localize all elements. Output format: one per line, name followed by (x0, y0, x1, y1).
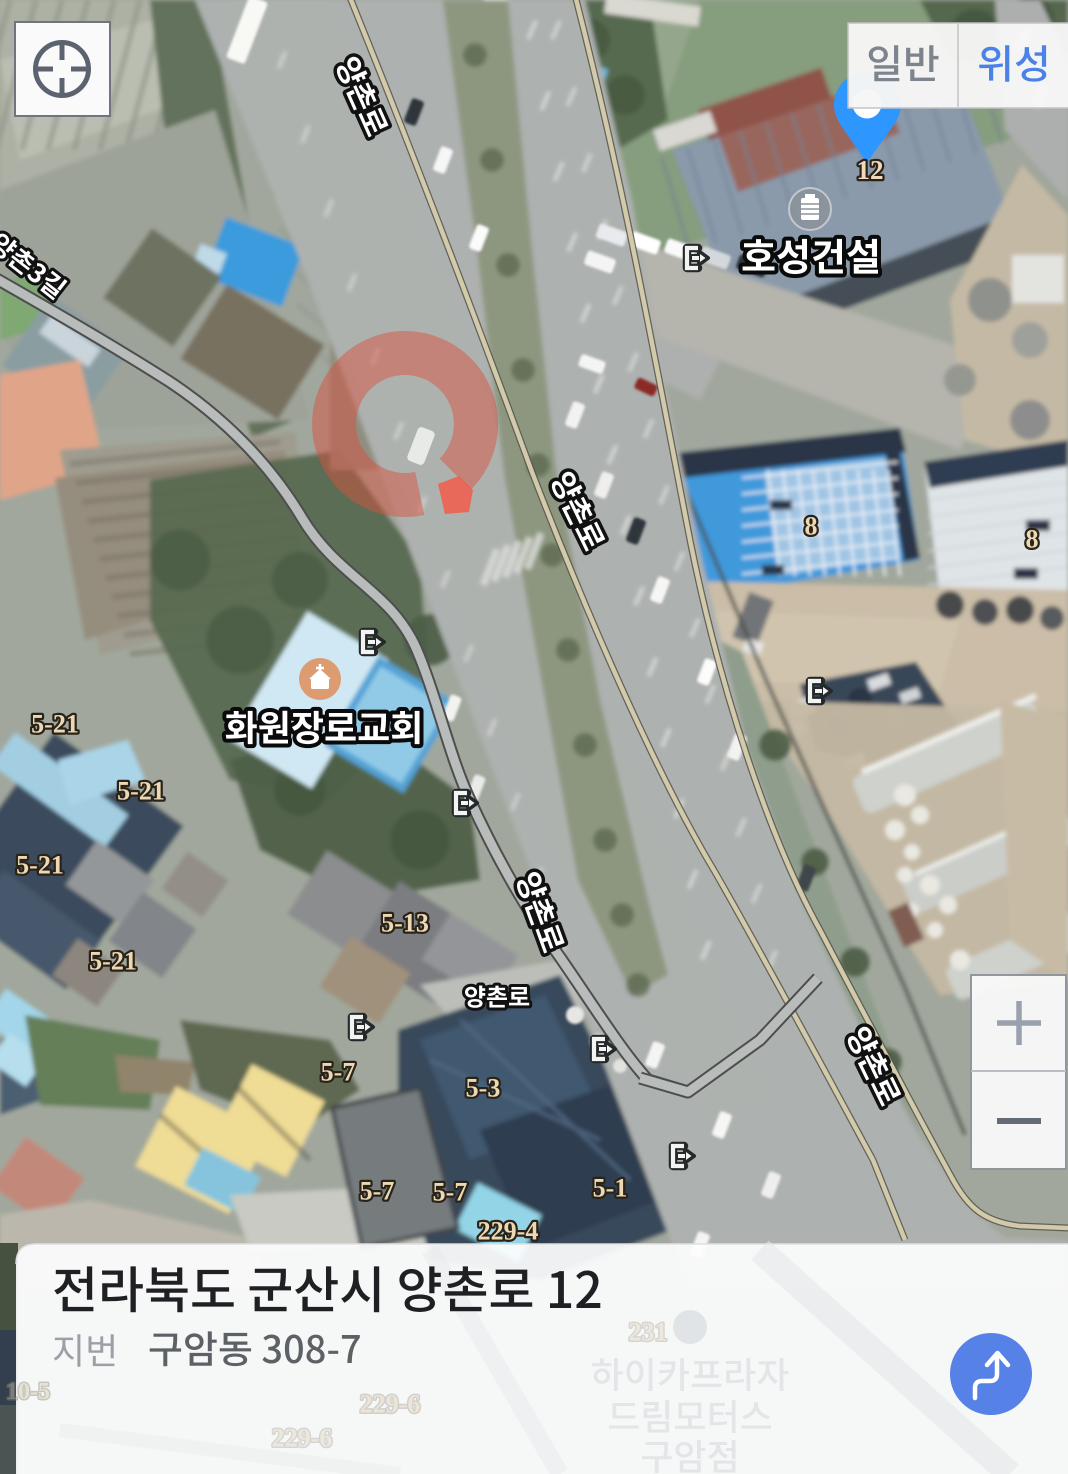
svg-text:12: 12 (857, 155, 884, 185)
svg-text:229-6: 229-6 (272, 1424, 333, 1453)
svg-text:8: 8 (1026, 525, 1039, 554)
svg-text:5-21: 5-21 (89, 947, 137, 976)
svg-text:5-1: 5-1 (593, 1174, 628, 1203)
svg-text:229-4: 229-4 (478, 1217, 539, 1246)
svg-text:5-13: 5-13 (381, 909, 429, 938)
svg-text:10-5: 10-5 (6, 1379, 50, 1405)
svg-text:5-3: 5-3 (466, 1074, 501, 1103)
svg-text:5-7: 5-7 (433, 1178, 468, 1207)
svg-text:229-6: 229-6 (360, 1390, 421, 1419)
svg-text:5-21: 5-21 (31, 710, 79, 739)
svg-text:231: 231 (629, 1318, 668, 1347)
svg-text:5-21: 5-21 (117, 777, 165, 806)
svg-text:8: 8 (805, 512, 818, 541)
svg-text:5-7: 5-7 (360, 1177, 395, 1206)
svg-text:5-21: 5-21 (16, 851, 64, 880)
svg-text:5-7: 5-7 (321, 1058, 356, 1087)
